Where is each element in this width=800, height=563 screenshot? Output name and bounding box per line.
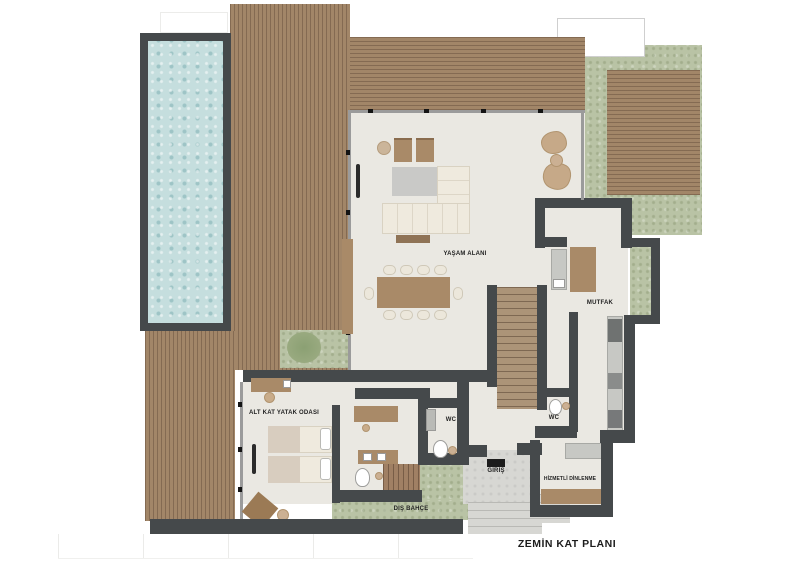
room-label-kitchen: MUTFAK — [575, 300, 625, 306]
deck-left-lower — [145, 331, 235, 521]
vanity-sink — [377, 453, 386, 461]
oven-appliance — [608, 319, 622, 342]
pantry-sink — [553, 279, 565, 288]
room-label-bedroom: ALT KAT YATAK ODASI — [234, 410, 334, 416]
wall — [457, 445, 487, 457]
wall — [535, 505, 613, 517]
coffee-table — [396, 235, 430, 243]
wall — [332, 405, 340, 503]
mullion-tick — [424, 109, 429, 113]
deck-top-right — [607, 70, 700, 195]
bedroom-tv — [252, 444, 256, 474]
rug — [392, 167, 437, 196]
shower-panel — [426, 409, 436, 431]
pouf-table — [550, 154, 563, 167]
door-mat — [487, 459, 505, 467]
dining-chair — [434, 310, 447, 320]
dining-chair — [417, 310, 430, 320]
dining-chair — [383, 310, 396, 320]
mullion-tick — [368, 109, 373, 113]
mullion-tick — [481, 109, 486, 113]
staff-cabinet — [565, 443, 602, 459]
cooktop-appliance — [608, 373, 622, 389]
beanbag — [541, 131, 567, 154]
basin — [448, 446, 457, 455]
kitchen-patio — [630, 247, 652, 315]
tall-cabinet — [570, 247, 596, 292]
bed-blanket — [268, 456, 300, 483]
vanity-sink — [363, 453, 372, 461]
wall — [624, 315, 635, 437]
room-label-living: YAŞAM ALANI — [420, 251, 510, 257]
sideboard — [342, 239, 353, 334]
wall — [601, 430, 613, 515]
dining-chair — [383, 265, 396, 275]
dining-chair — [364, 287, 374, 300]
site-line — [160, 12, 228, 33]
mullion-tick — [346, 210, 350, 215]
mullion-tick — [346, 150, 350, 155]
bed-pillow — [320, 458, 331, 480]
room-label-staff: HİZMETLİ DİNLENME — [536, 476, 604, 482]
desk-chair — [264, 392, 275, 403]
dining-chair — [400, 265, 413, 275]
staircase-garden — [383, 464, 420, 492]
dining-chair — [400, 310, 413, 320]
paving-lines — [58, 534, 473, 559]
toilet — [549, 399, 562, 415]
wall — [487, 285, 497, 387]
side-table — [377, 141, 391, 155]
wall — [537, 237, 567, 247]
retaining-wall — [150, 519, 463, 534]
dining-chair — [434, 265, 447, 275]
mullion-tick — [538, 109, 543, 113]
wall — [537, 285, 547, 410]
mullion-tick — [238, 487, 242, 492]
staircase-main — [497, 287, 537, 409]
mullion-tick — [238, 402, 242, 407]
basin — [562, 402, 570, 410]
deck-left-upper — [230, 4, 350, 370]
tv-unit — [356, 164, 360, 198]
dining-table — [377, 277, 450, 308]
glass-wall-north — [350, 110, 585, 113]
plan-title: ZEMİN KAT PLANI — [487, 538, 647, 550]
wall — [651, 238, 660, 324]
staff-bench — [541, 489, 602, 504]
desk-lamp — [283, 380, 291, 388]
wall — [569, 312, 578, 432]
floor-plan: YAŞAM ALANI MUTFAK ALT KAT YATAK ODASI W… — [0, 0, 800, 563]
toilet — [355, 468, 370, 487]
room-label-wc-bedroom: WC — [436, 417, 466, 423]
wall — [332, 490, 422, 502]
wardrobe — [354, 406, 398, 422]
wardrobe-stool — [362, 424, 370, 432]
bath-stool — [375, 472, 383, 480]
bed-blanket — [268, 426, 300, 453]
room-label-entrance: GİRİŞ — [471, 468, 521, 474]
pool-water — [148, 41, 223, 323]
room-label-garden: DIŞ BAHÇE — [376, 506, 446, 512]
armchair — [416, 138, 434, 162]
toilet — [433, 440, 448, 458]
armchair — [394, 138, 412, 162]
wall — [517, 443, 542, 455]
dining-chair — [453, 287, 463, 300]
glass-wall-east — [581, 113, 584, 200]
mullion-tick — [238, 447, 242, 452]
dining-chair — [417, 265, 430, 275]
bed-pillow — [320, 428, 331, 450]
bush — [287, 332, 321, 363]
dishwasher-appliance — [608, 410, 622, 428]
room-label-wc-kitchen: WC — [539, 415, 569, 421]
deck-top — [350, 37, 585, 113]
sofa-main — [382, 203, 470, 234]
